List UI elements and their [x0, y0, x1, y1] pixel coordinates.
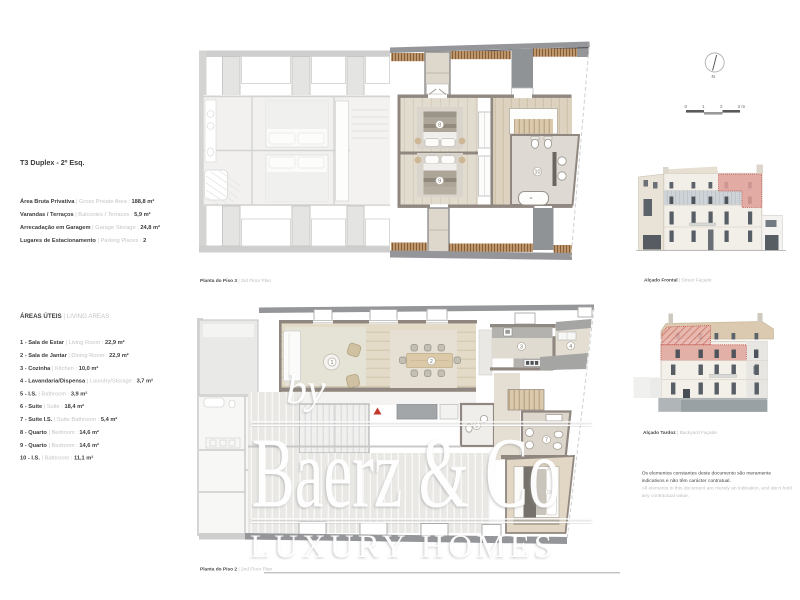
svg-text:2: 2: [720, 104, 723, 109]
svg-text:9 - Quarto | Bedroom : 14,6 m: 9 - Quarto | Bedroom : 14,6 m²: [20, 442, 99, 449]
svg-text:Alçado Frontal | Street Façade: Alçado Frontal | Street Façade: [644, 278, 712, 284]
svg-text:4 - Lavandaria/Dispensa | Laun: 4 - Lavandaria/Dispensa | Laundry/Storag…: [20, 378, 153, 385]
svg-text:N: N: [712, 74, 715, 79]
svg-text:1: 1: [331, 360, 334, 366]
svg-text:Alçado Tardoz | Backyard Façad: Alçado Tardoz | Backyard Façade: [643, 430, 717, 436]
svg-text:Varandas / Terraços | Balconie: Varandas / Terraços | Balconies / Terrac…: [20, 211, 151, 218]
svg-text:ÁREAS ÚTEIS | LIVING AREAS: ÁREAS ÚTEIS | LIVING AREAS: [20, 313, 109, 320]
svg-text:8: 8: [438, 123, 441, 129]
svg-text:9: 9: [438, 179, 441, 185]
svg-text:Planta do Piso 2 | 2nd Floor P: Planta do Piso 2 | 2nd Floor Plan: [200, 567, 273, 573]
svg-text:5 - I.S. | Bathroom : 3,9 m²: 5 - I.S. | Bathroom : 3,9 m²: [20, 391, 87, 398]
svg-text:T3 Duplex - 2º Esq.: T3 Duplex - 2º Esq.: [20, 158, 85, 167]
svg-text:Lugares de Estacionamento | Pa: Lugares de Estacionamento | Parking Plac…: [20, 238, 146, 244]
svg-text:4: 4: [569, 344, 572, 350]
svg-text:LUXURY HOMES: LUXURY HOMES: [250, 529, 556, 565]
svg-text:3 - Cozinha | Kitchen : 10,0: 3 - Cozinha | Kitchen : 10,0 m²: [20, 365, 98, 372]
svg-text:10 - I.S. | Bathroom : 11,1 m: 10 - I.S. | Bathroom : 11,1 m²: [20, 455, 93, 462]
svg-text:0: 0: [685, 104, 688, 109]
svg-text:Área Bruta Privativa | Gross P: Área Bruta Privativa | Gross Private Are…: [20, 198, 154, 205]
svg-text:7 - Suite I.S. | Suite Bathroo: 7 - Suite I.S. | Suite Bathroom : 5,4 m²: [20, 416, 117, 423]
svg-text:8 - Quarto | Bedroom : 14,6 m: 8 - Quarto | Bedroom : 14,6 m²: [20, 429, 99, 436]
svg-text:10: 10: [535, 170, 541, 176]
svg-text:Baerz & Co: Baerz & Co: [252, 417, 561, 529]
svg-text:3 m: 3 m: [738, 104, 746, 109]
svg-text:indicativos e não têm carácter: indicativos e não têm carácter contratua…: [642, 478, 731, 484]
svg-text:any contractual value.: any contractual value.: [642, 493, 690, 499]
svg-text:6 - Suite | Suite : 18,4 m²: 6 - Suite | Suite : 18,4 m²: [20, 403, 84, 410]
svg-text:1 - Sala de Estar | Living Roo: 1 - Sala de Estar | Living Room : 22,9 m…: [20, 339, 125, 346]
svg-text:1: 1: [702, 104, 705, 109]
svg-text:Planta do Piso 3 | 3rd Floor P: Planta do Piso 3 | 3rd Floor Plan: [200, 278, 271, 284]
svg-text:2: 2: [430, 359, 433, 365]
svg-text:3: 3: [520, 345, 523, 351]
svg-text:by: by: [286, 367, 326, 413]
svg-text:2 - Sala de Jantar | Dining Ro: 2 - Sala de Jantar | Dining Room : 22,9 …: [20, 352, 129, 359]
svg-text:Arrecadação em Garagem | Garag: Arrecadação em Garagem | Garage Storage …: [20, 224, 160, 231]
svg-text:All elements in this document: All elements in this document are merely…: [642, 486, 792, 492]
svg-text:Os elementos constantes deste: Os elementos constantes deste documento …: [642, 471, 772, 477]
